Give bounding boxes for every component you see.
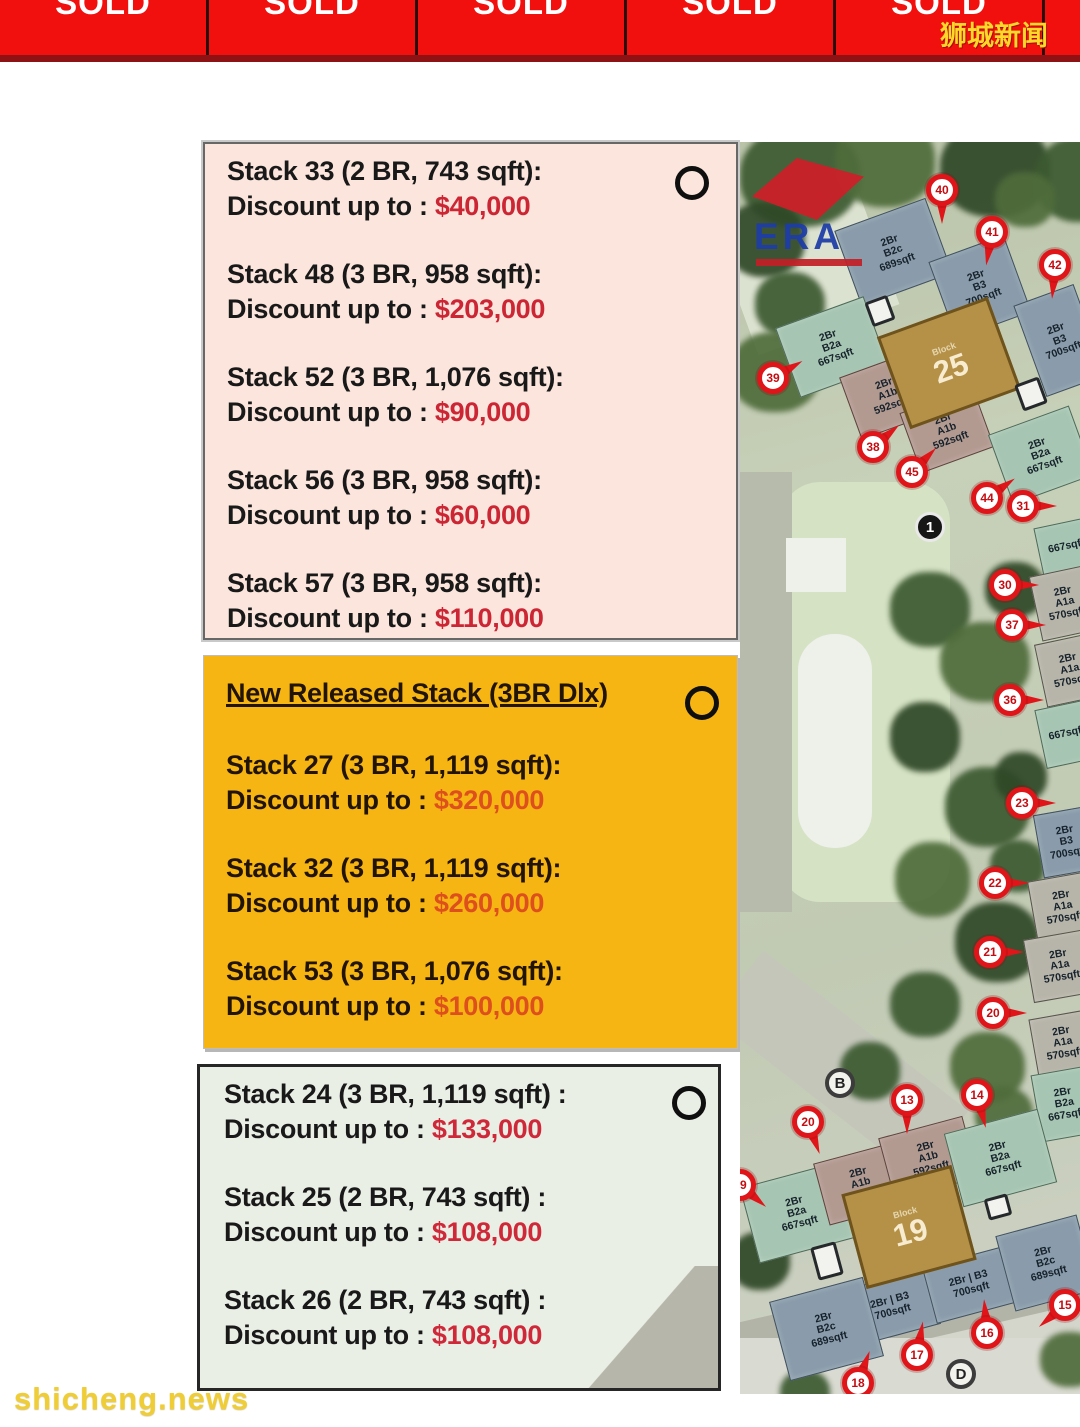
unit-label: 667sqft bbox=[1048, 725, 1080, 744]
era-logo-text: ERA bbox=[754, 216, 876, 258]
stack-title: Stack 25 (2 BR, 743 sqft) : bbox=[224, 1180, 718, 1215]
map-circle-marker: D bbox=[946, 1359, 976, 1389]
map-pin: 36 bbox=[994, 684, 1026, 716]
map-pin: 17 bbox=[901, 1339, 933, 1371]
discount-label: Discount up to : bbox=[227, 191, 435, 221]
site-brand-label: 狮城新闻 bbox=[940, 14, 1048, 53]
unit-label: 2Br A1a 570sqft bbox=[1048, 649, 1080, 691]
resale-discounts-box: Stack 33 (2 BR, 743 sqft): Discount up t… bbox=[203, 142, 738, 640]
stack-discount-item: Stack 56 (3 BR, 958 sqft): Discount up t… bbox=[227, 463, 736, 533]
gate-marker bbox=[810, 1241, 844, 1281]
map-pin: 20 bbox=[792, 1106, 824, 1138]
discount-amount: $100,000 bbox=[434, 991, 544, 1021]
discount-amount: $108,000 bbox=[432, 1320, 542, 1350]
stack-title: Stack 27 (3 BR, 1,119 sqft): bbox=[226, 748, 737, 783]
unit-label: 2Br B2a 667sqft bbox=[1018, 432, 1064, 477]
map-pin: 20 bbox=[977, 997, 1009, 1029]
map-pin: 45 bbox=[896, 456, 928, 488]
unit-label: 2Br A1a 570sqft bbox=[1039, 946, 1080, 986]
stack-discount-item: Stack 57 (3 BR, 958 sqft): Discount up t… bbox=[227, 566, 736, 636]
discount-amount: $40,000 bbox=[435, 191, 531, 221]
pin-number: 22 bbox=[979, 867, 1011, 899]
tree-cluster bbox=[890, 702, 960, 772]
discount-label: Discount up to : bbox=[226, 888, 434, 918]
stack-discount-item: Stack 33 (2 BR, 743 sqft): Discount up t… bbox=[227, 154, 736, 224]
stack-discount-item: Stack 53 (3 BR, 1,076 sqft): Discount up… bbox=[226, 954, 737, 1024]
map-pin: 37 bbox=[996, 609, 1028, 641]
discount-amount: $320,000 bbox=[434, 785, 544, 815]
corner-shade bbox=[561, 1266, 721, 1391]
pin-number: 21 bbox=[974, 936, 1006, 968]
map-unit-block: 2Br B3 700sqft bbox=[1013, 284, 1080, 397]
map-pin: 39 bbox=[757, 362, 789, 394]
sold-label: SOLD bbox=[682, 0, 778, 55]
pin-number: 14 bbox=[961, 1079, 993, 1111]
map-pin: 13 bbox=[891, 1084, 923, 1116]
discount-label: Discount up to : bbox=[227, 294, 435, 324]
pin-number: 23 bbox=[1006, 787, 1038, 819]
stack-title: Stack 56 (3 BR, 958 sqft): bbox=[227, 463, 736, 498]
pin-number: 36 bbox=[994, 684, 1026, 716]
pin-number: 42 bbox=[1039, 249, 1071, 281]
map-pin: 40 bbox=[926, 174, 958, 206]
stack-discount-line: Discount up to : $40,000 bbox=[227, 189, 736, 224]
discount-amount: $60,000 bbox=[435, 500, 531, 530]
sold-cell: SOLD bbox=[418, 0, 627, 55]
map-pin: 22 bbox=[979, 867, 1011, 899]
stack-discount-item: Stack 48 (3 BR, 958 sqft): Discount up t… bbox=[227, 257, 736, 327]
map-pin: 41 bbox=[976, 216, 1008, 248]
map-circle-marker: 1 bbox=[915, 512, 945, 542]
unit-label: 2Br B2c 689sqft bbox=[804, 1308, 848, 1351]
unit-label: 2Br B3 700sqft bbox=[1045, 822, 1080, 862]
map-pin: 38 bbox=[857, 431, 889, 463]
gate-marker bbox=[984, 1193, 1013, 1220]
discount-label: Discount up to : bbox=[227, 603, 435, 633]
unit-label: 2Br B3 700sqft bbox=[1037, 318, 1080, 363]
sold-banner: SOLD SOLD SOLD SOLD SOLD SOLD 狮城新闻 bbox=[0, 0, 1080, 62]
pin-number: 15 bbox=[1049, 1289, 1080, 1321]
discount-label: Discount up to : bbox=[224, 1217, 432, 1247]
discount-amount: $133,000 bbox=[432, 1114, 542, 1144]
pin-number: 44 bbox=[971, 482, 1003, 514]
unit-label: 2Br | B3 700sqft bbox=[869, 1291, 913, 1324]
era-logo-bar bbox=[756, 259, 862, 266]
stack-title: Stack 32 (3 BR, 1,119 sqft): bbox=[226, 851, 737, 886]
pin-number: 13 bbox=[891, 1084, 923, 1116]
watermark: shicheng.news bbox=[14, 1381, 249, 1417]
new-release-heading: New Released Stack (3BR Dlx) bbox=[226, 676, 737, 711]
map-circle-marker: B bbox=[825, 1068, 855, 1098]
tree-cluster bbox=[890, 972, 960, 1037]
map-unit-block: 2Br A1a 570sqft bbox=[1034, 632, 1080, 707]
map-unit-block: 2Br A1a 570sqft bbox=[1028, 1009, 1080, 1077]
new-release-box: New Released Stack (3BR Dlx) Stack 27 (3… bbox=[203, 655, 738, 1049]
stack-discount-line: Discount up to : $110,000 bbox=[227, 601, 736, 636]
discount-amount: $110,000 bbox=[435, 603, 544, 633]
sold-label: SOLD bbox=[264, 0, 360, 55]
stack-discount-item: Stack 24 (3 BR, 1,119 sqft) : Discount u… bbox=[224, 1077, 718, 1147]
unit-label: 2Br B2a 667sqft bbox=[809, 324, 855, 369]
discount-label: Discount up to : bbox=[224, 1114, 432, 1144]
site-map: 2Br B2c 689sqft 2Br B3 700sqft 2Br B3 70… bbox=[740, 142, 1080, 1394]
resale-items: Stack 33 (2 BR, 743 sqft): Discount up t… bbox=[227, 154, 736, 636]
stack-discount-line: Discount up to : $60,000 bbox=[227, 498, 736, 533]
pin-number: 30 bbox=[989, 569, 1021, 601]
unit-label: 2Br | B3 700sqft bbox=[948, 1269, 992, 1302]
unit-label: 2Br B2a 667sqft bbox=[775, 1192, 819, 1235]
sold-cell: SOLD bbox=[209, 0, 418, 55]
map-pin: 30 bbox=[989, 569, 1021, 601]
stack-discount-line: Discount up to : $320,000 bbox=[226, 783, 737, 818]
pin-number: 40 bbox=[926, 174, 958, 206]
discount-amount: $260,000 bbox=[434, 888, 544, 918]
discount-label: Discount up to : bbox=[227, 397, 435, 427]
stack-discount-line: Discount up to : $100,000 bbox=[226, 989, 737, 1024]
discount-label: Discount up to : bbox=[227, 500, 435, 530]
map-pin: 23 bbox=[1006, 787, 1038, 819]
stack-title: Stack 33 (2 BR, 743 sqft): bbox=[227, 154, 736, 189]
discount-label: Discount up to : bbox=[226, 991, 434, 1021]
stack-discount-line: Discount up to : $260,000 bbox=[226, 886, 737, 921]
stack-discount-line: Discount up to : $203,000 bbox=[227, 292, 736, 327]
discount-amount: $108,000 bbox=[432, 1217, 542, 1247]
pin-number: 39 bbox=[757, 362, 789, 394]
sold-cell: SOLD bbox=[0, 0, 209, 55]
pin-number: 37 bbox=[996, 609, 1028, 641]
sold-cell: SOLD bbox=[627, 0, 836, 55]
circle-mark-icon bbox=[685, 686, 719, 720]
block19-discounts-box: Stack 24 (3 BR, 1,119 sqft) : Discount u… bbox=[197, 1064, 721, 1391]
unit-label: 2Br B2c 689sqft bbox=[1024, 1242, 1068, 1285]
map-pin: 16 bbox=[971, 1317, 1003, 1349]
stack-title: Stack 57 (3 BR, 958 sqft): bbox=[227, 566, 736, 601]
clubhouse-building bbox=[786, 538, 846, 592]
era-roof-icon bbox=[752, 158, 864, 220]
pin-number: 18 bbox=[842, 1367, 874, 1394]
tree-cluster bbox=[895, 842, 970, 917]
circle-mark-icon bbox=[672, 1086, 706, 1120]
stack-discount-item: Stack 52 (3 BR, 1,076 sqft): Discount up… bbox=[227, 360, 736, 430]
discount-amount: $90,000 bbox=[435, 397, 531, 427]
stack-title: Stack 24 (3 BR, 1,119 sqft) : bbox=[224, 1077, 718, 1112]
map-pin: 44 bbox=[971, 482, 1003, 514]
unit-label: 667sqft bbox=[1047, 538, 1080, 557]
map-pin: 42 bbox=[1039, 249, 1071, 281]
banner-bottom-strip bbox=[0, 55, 1080, 62]
map-pin: 14 bbox=[961, 1079, 993, 1111]
pin-number: 45 bbox=[896, 456, 928, 488]
map-pin: 19 bbox=[740, 1169, 756, 1201]
road-shape bbox=[740, 472, 792, 912]
stack-title: Stack 53 (3 BR, 1,076 sqft): bbox=[226, 954, 737, 989]
map-unit-block: 2Br A1a 570sqft bbox=[1023, 929, 1080, 1003]
stack-title: Stack 52 (3 BR, 1,076 sqft): bbox=[227, 360, 736, 395]
pin-number: 20 bbox=[792, 1106, 824, 1138]
unit-label: 2Br B2a 667sqft bbox=[1043, 1084, 1080, 1124]
pin-number: 20 bbox=[977, 997, 1009, 1029]
stack-title: Stack 48 (3 BR, 958 sqft): bbox=[227, 257, 736, 292]
discount-amount: $203,000 bbox=[435, 294, 545, 324]
map-pin: 31 bbox=[1007, 490, 1039, 522]
stack-discount-item: Stack 25 (2 BR, 743 sqft) : Discount up … bbox=[224, 1180, 718, 1250]
sold-label: SOLD bbox=[473, 0, 569, 55]
stack-discount-line: Discount up to : $133,000 bbox=[224, 1112, 718, 1147]
unit-label: 2Br A1a 570sqft bbox=[1042, 1023, 1080, 1063]
flyer-page: SOLD SOLD SOLD SOLD SOLD SOLD 狮城新闻 bbox=[0, 0, 1080, 1427]
map-unit-block: 2Br A1a 570sqft bbox=[1029, 564, 1080, 641]
discount-label: Discount up to : bbox=[226, 785, 434, 815]
sold-cell: SOLD bbox=[1045, 0, 1080, 55]
stack-discount-line: Discount up to : $90,000 bbox=[227, 395, 736, 430]
map-pin: 21 bbox=[974, 936, 1006, 968]
map-pin: 15 bbox=[1049, 1289, 1080, 1321]
stack-discount-line: Discount up to : $108,000 bbox=[224, 1215, 718, 1250]
map-pin: 18 bbox=[842, 1367, 874, 1394]
pin-number: 16 bbox=[971, 1317, 1003, 1349]
circle-mark-icon bbox=[675, 166, 709, 200]
pin-number: 38 bbox=[857, 431, 889, 463]
pin-number: 41 bbox=[976, 216, 1008, 248]
discount-label: Discount up to : bbox=[224, 1320, 432, 1350]
sold-banner-cells: SOLD SOLD SOLD SOLD SOLD SOLD bbox=[0, 0, 1080, 55]
new-release-items: Stack 27 (3 BR, 1,119 sqft): Discount up… bbox=[226, 748, 737, 1024]
clubhouse-building bbox=[798, 634, 872, 848]
pin-number: 17 bbox=[901, 1339, 933, 1371]
unit-label: 2Br A1a 570sqft bbox=[1043, 582, 1080, 624]
pin-number: 31 bbox=[1007, 490, 1039, 522]
sold-label: SOLD bbox=[55, 0, 151, 55]
stack-discount-item: Stack 27 (3 BR, 1,119 sqft): Discount up… bbox=[226, 748, 737, 818]
unit-label: 2Br A1a 570sqft bbox=[1042, 887, 1080, 927]
unit-label: 2Br B2a 667sqft bbox=[978, 1137, 1022, 1180]
era-logo: ERA bbox=[752, 158, 876, 266]
unit-label: 2Br B2c 689sqft bbox=[870, 229, 916, 274]
stack-discount-item: Stack 32 (3 BR, 1,119 sqft): Discount up… bbox=[226, 851, 737, 921]
map-unit-block: 667sqft bbox=[1034, 699, 1080, 769]
